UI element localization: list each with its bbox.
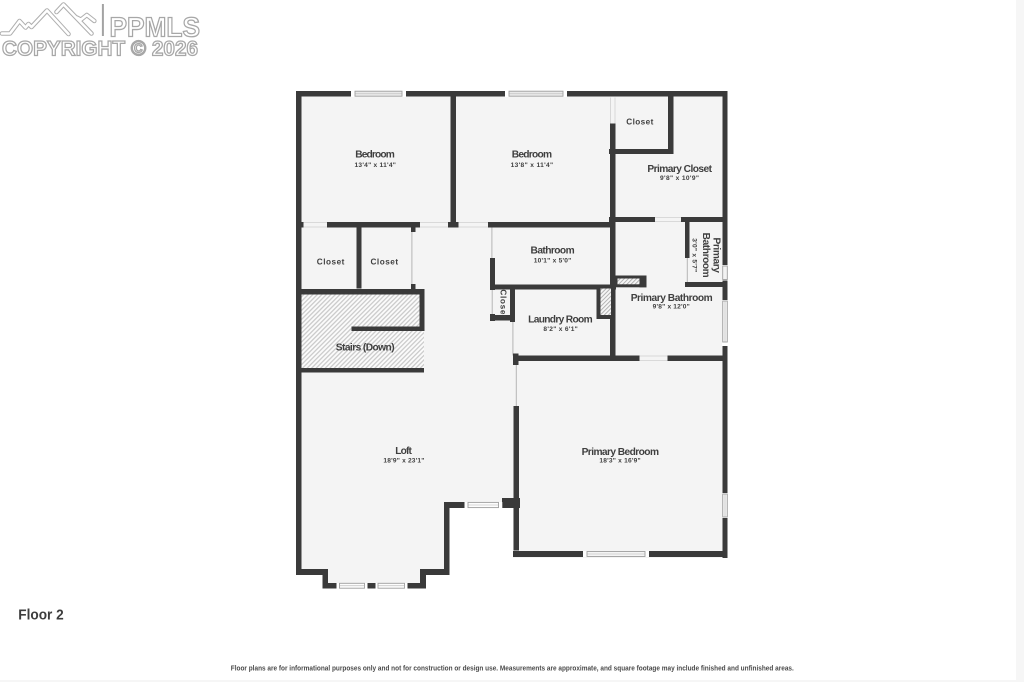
svg-text:Laundry Room: Laundry Room [528,315,593,326]
svg-text:Bedroom: Bedroom [512,150,552,161]
svg-text:Closet: Closet [499,289,508,318]
svg-text:Bathroom: Bathroom [531,246,575,257]
svg-text:10'1" x 5'0": 10'1" x 5'0" [534,258,572,265]
svg-text:9'8" x 10'9": 9'8" x 10'9" [660,175,699,182]
svg-text:Closet: Closet [626,118,653,127]
svg-text:Closet: Closet [371,257,399,266]
svg-text:Primary Closet: Primary Closet [647,164,712,175]
svg-text:3'0" x 5'7": 3'0" x 5'7" [691,238,698,272]
svg-text:Closet: Closet [317,258,345,267]
svg-text:18'3" x 16'9": 18'3" x 16'9" [599,457,640,464]
svg-text:COPYRIGHT © 2026: COPYRIGHT © 2026 [2,37,198,61]
svg-text:18'9" x 23'1": 18'9" x 23'1" [383,457,424,464]
svg-text:Floor plans are for informatio: Floor plans are for informational purpos… [231,663,794,672]
svg-text:8'2" x 6'1": 8'2" x 6'1" [543,326,577,333]
svg-text:13'8" x 11'4": 13'8" x 11'4" [511,162,554,169]
svg-text:Primary: Primary [711,237,722,273]
svg-text:Bedroom: Bedroom [355,150,395,161]
svg-text:9'8" x 12'0": 9'8" x 12'0" [653,304,690,311]
svg-text:13'4" x 11'4": 13'4" x 11'4" [355,162,396,169]
svg-text:Stairs (Down): Stairs (Down) [336,343,395,354]
svg-text:Loft: Loft [395,446,412,457]
svg-text:Floor 2: Floor 2 [18,607,63,624]
svg-text:Primary Bathroom: Primary Bathroom [631,293,713,304]
svg-text:Bathroom: Bathroom [700,233,711,278]
